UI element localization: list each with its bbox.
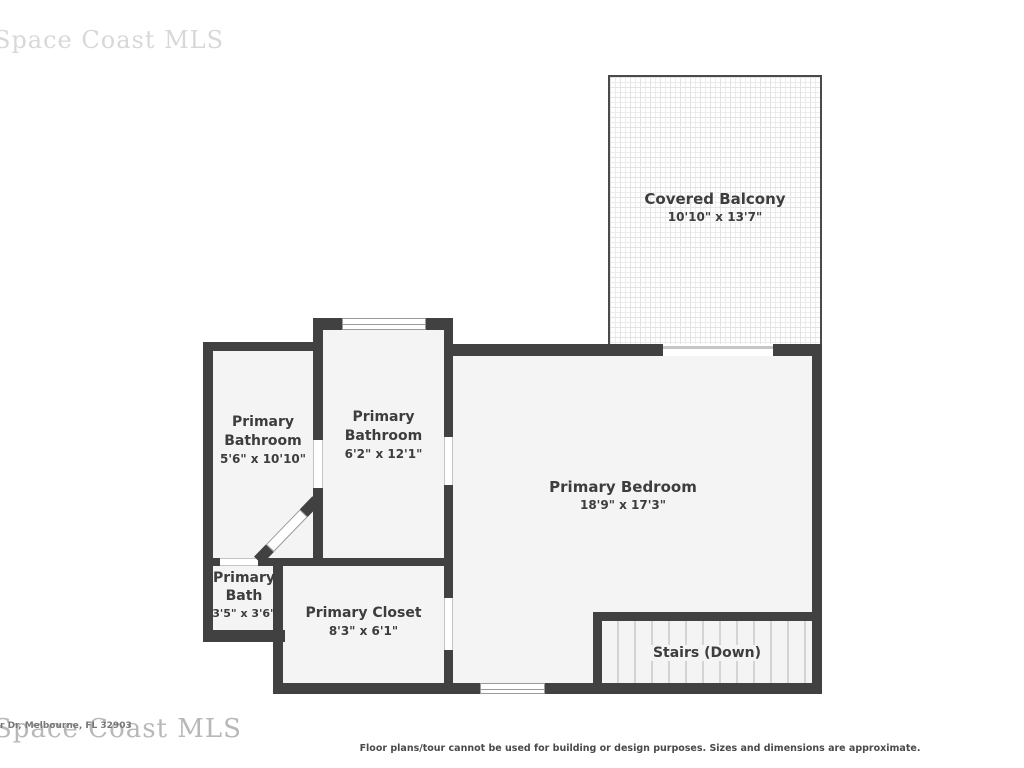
room-dimensions: 18'9" x 17'3" xyxy=(453,497,793,514)
wall-closet-top xyxy=(258,558,453,566)
wall-midbath-right-lower xyxy=(444,485,453,598)
room-name: Covered Balcony xyxy=(608,190,822,209)
window-bedroom-bottom xyxy=(480,683,545,694)
wall-stairs-left xyxy=(593,612,602,694)
wall-bedroom-right xyxy=(812,344,822,694)
disclaimer-text: Floor plans/tour cannot be used for buil… xyxy=(300,743,980,754)
wall-bottom-right xyxy=(545,683,822,694)
wall-bottom-left xyxy=(273,683,480,694)
room-dimensions: 10'10" x 13'7" xyxy=(608,209,822,226)
wall-midbath-top-left xyxy=(313,318,342,330)
doorway-primarybath xyxy=(220,558,258,566)
wall-leftbath-top xyxy=(203,342,323,351)
room-name-line2: Bath xyxy=(201,587,287,605)
wall-midbath-right-upper xyxy=(444,318,453,437)
room-label-stairs: Stairs (Down) xyxy=(602,645,812,661)
room-name-line1: Primary xyxy=(201,569,287,587)
room-dimensions: 8'3" x 6'1" xyxy=(283,623,444,640)
room-name: Stairs (Down) xyxy=(648,645,766,661)
watermark-top: Space Coast MLS xyxy=(0,26,224,54)
watermark-address-overlay: r Dr, Melbourne, FL 32903 xyxy=(0,721,132,731)
room-name-line1: Primary xyxy=(323,408,444,427)
room-name-line1: Primary xyxy=(211,413,315,432)
doorway-midbath-bedroom xyxy=(444,437,453,485)
room-name-line2: Bathroom xyxy=(323,427,444,446)
doorway-closet xyxy=(444,598,453,650)
room-label-covered-balcony: Covered Balcony 10'10" x 13'7" xyxy=(608,190,822,226)
sliding-door-balcony xyxy=(663,344,773,356)
room-name: Primary Closet xyxy=(283,604,444,623)
room-dimensions: 6'2" x 12'1" xyxy=(323,446,444,463)
wall-stairs-top xyxy=(593,612,822,621)
room-name-line2: Bathroom xyxy=(211,432,315,451)
room-label-primary-bathroom-left: Primary Bathroom 5'6" x 10'10" xyxy=(211,413,315,468)
wall-bedroom-top-left xyxy=(444,344,663,356)
room-label-primary-closet: Primary Closet 8'3" x 6'1" xyxy=(283,604,444,640)
room-label-primary-bedroom: Primary Bedroom 18'9" x 17'3" xyxy=(453,478,793,514)
room-label-primary-bath: Primary Bath 3'5" x 3'6" xyxy=(201,569,287,622)
room-name: Primary Bedroom xyxy=(453,478,793,497)
room-dimensions: 5'6" x 10'10" xyxy=(211,451,315,468)
wall-primarybath-top-stub xyxy=(203,558,220,566)
window-midbath xyxy=(342,318,426,330)
room-dimensions: 3'5" x 3'6" xyxy=(201,605,287,622)
room-label-primary-bathroom-mid: Primary Bathroom 6'2" x 12'1" xyxy=(323,408,444,463)
